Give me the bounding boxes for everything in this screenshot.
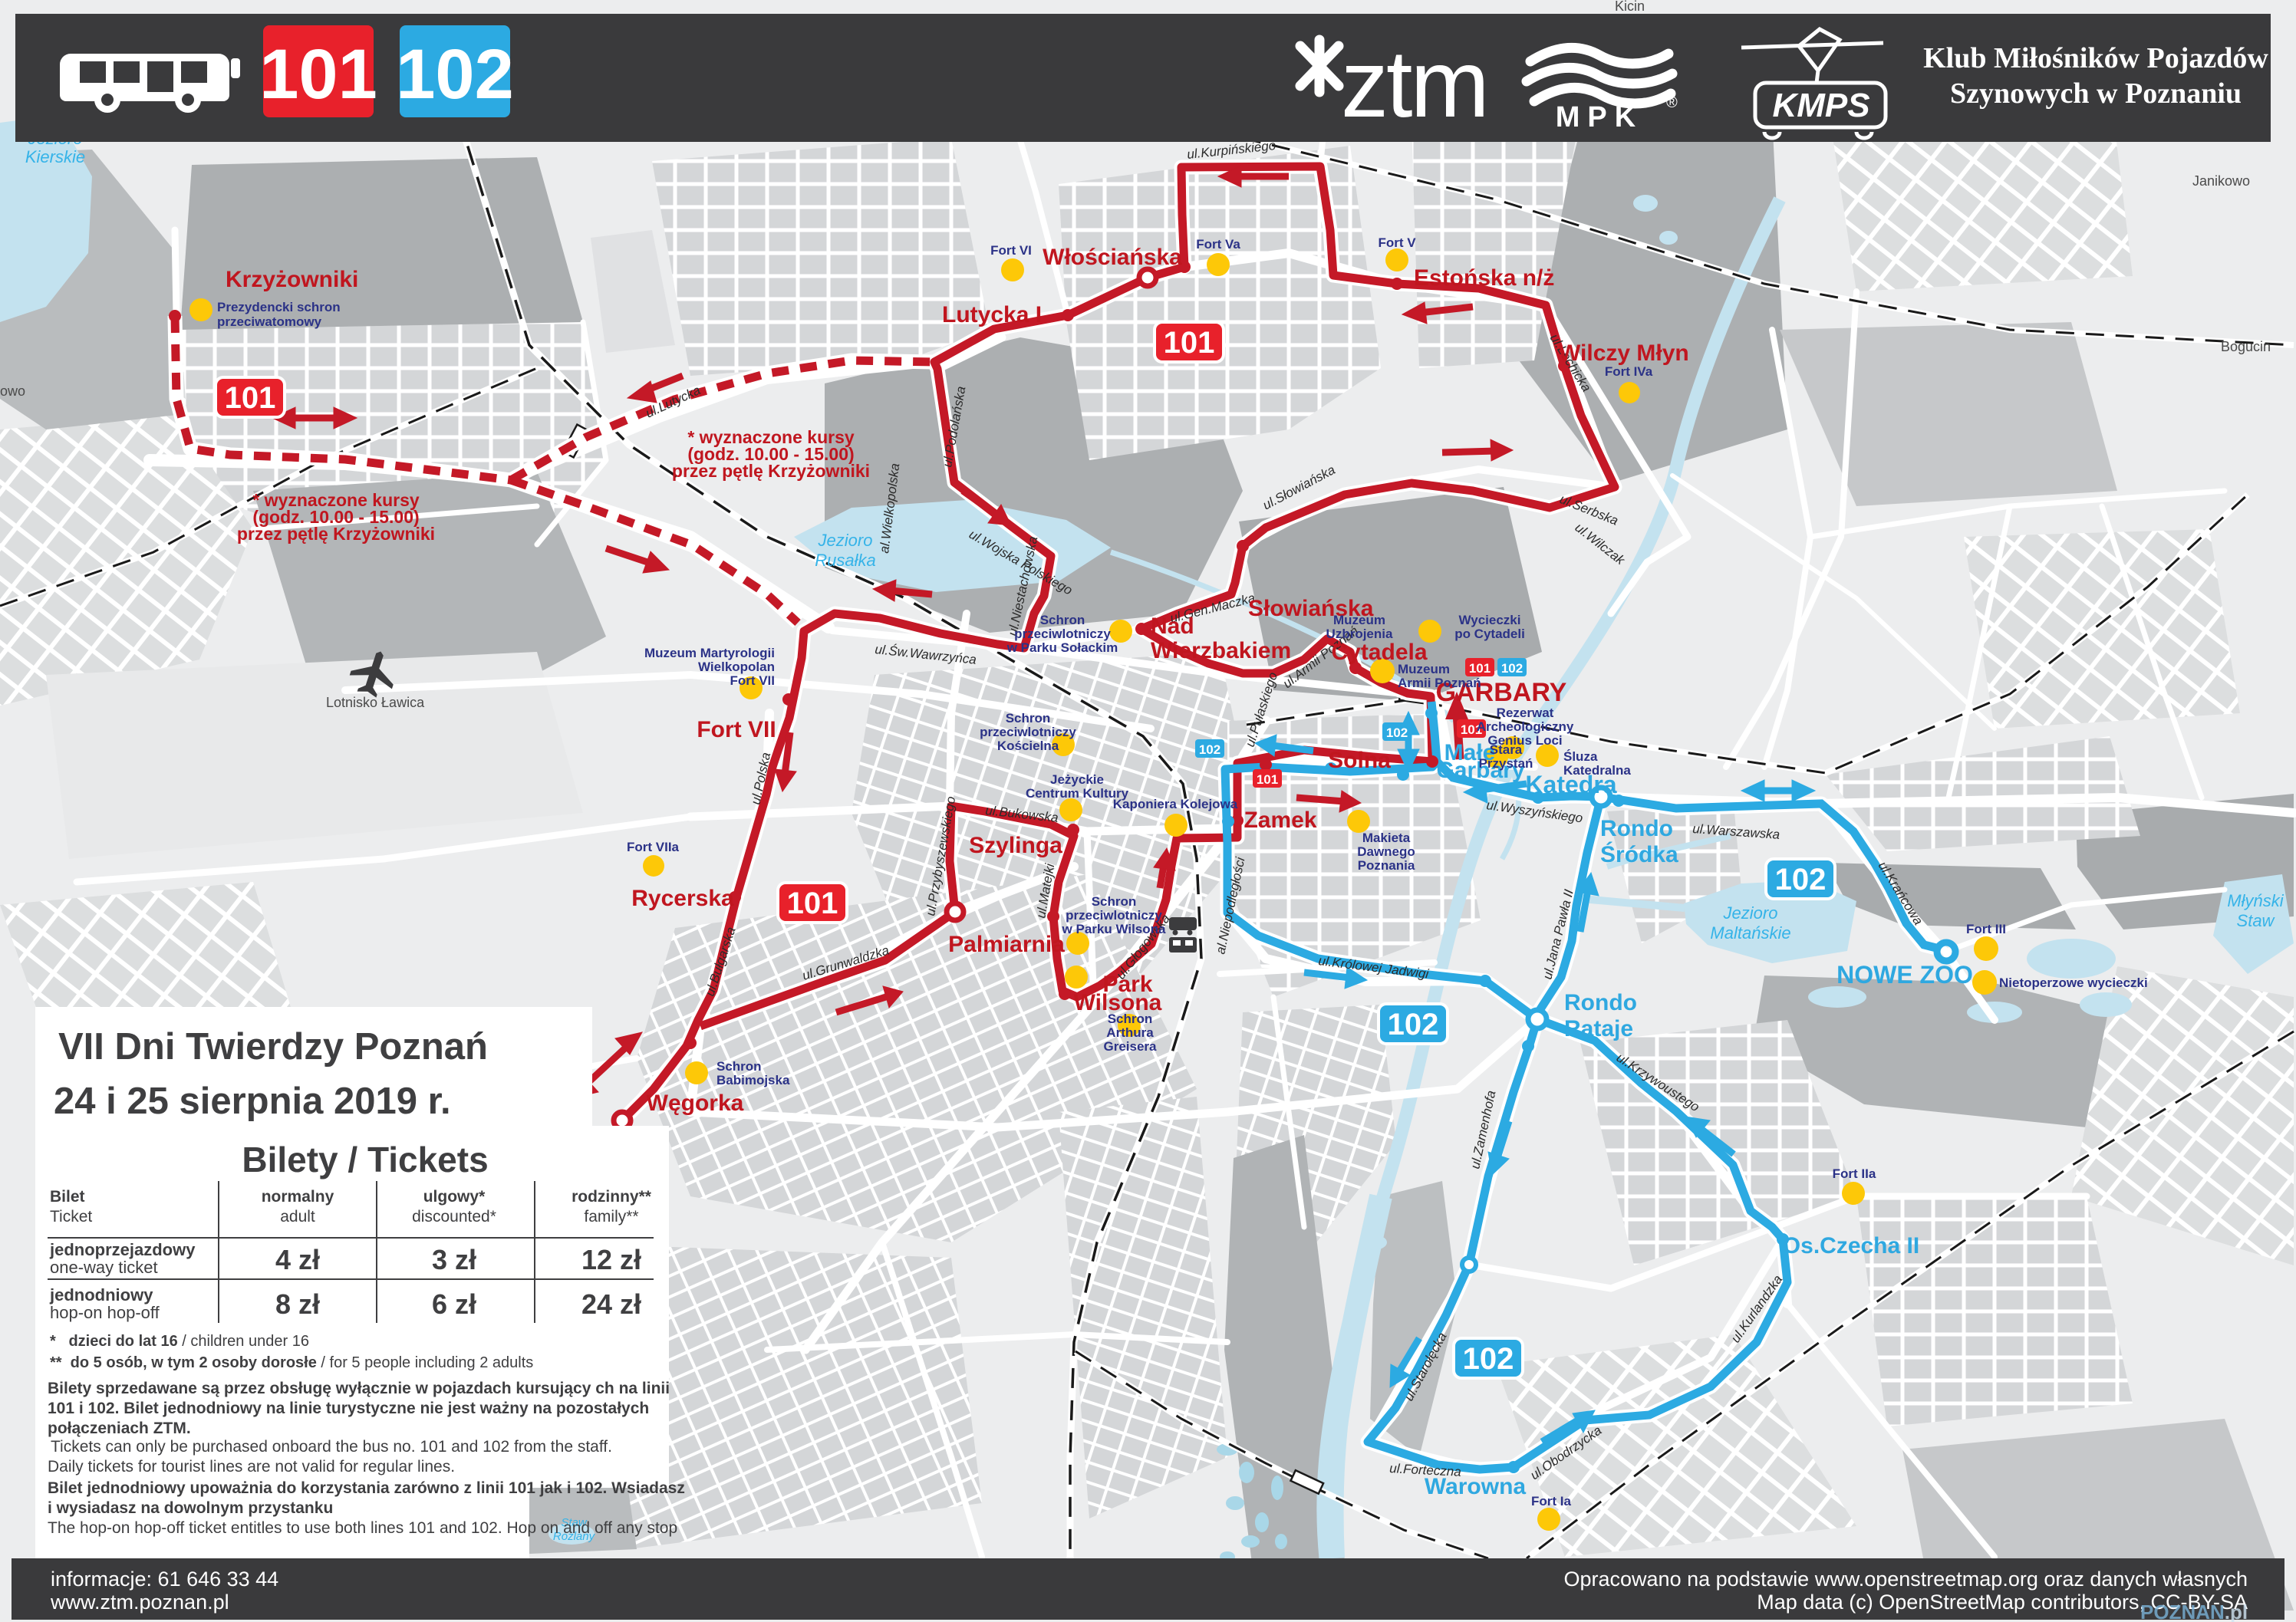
svg-text:Muzeum Martyrologii: Muzeum Martyrologii bbox=[644, 646, 775, 660]
svg-text:Fort V: Fort V bbox=[1378, 235, 1416, 250]
svg-text:MPK: MPK bbox=[1556, 101, 1643, 133]
svg-text:6 zł: 6 zł bbox=[432, 1288, 476, 1320]
svg-text:Staw: Staw bbox=[2237, 911, 2276, 930]
svg-text:Śródka: Śródka bbox=[1600, 841, 1678, 867]
svg-text:Lutycka I: Lutycka I bbox=[942, 302, 1042, 327]
svg-text:Przystań: Przystań bbox=[1479, 756, 1533, 771]
svg-text:101: 101 bbox=[259, 35, 377, 114]
svg-text:normalny: normalny bbox=[262, 1188, 334, 1206]
svg-text:NOWE ZOO: NOWE ZOO bbox=[1836, 961, 1973, 989]
svg-text:Fort Ia: Fort Ia bbox=[1531, 1494, 1571, 1508]
svg-text:informacje: 61 646 33 44: informacje: 61 646 33 44 bbox=[51, 1568, 278, 1591]
svg-text:Kościelna: Kościelna bbox=[997, 739, 1059, 753]
svg-text:101: 101 bbox=[1469, 661, 1491, 676]
svg-text:Estońska n/ż: Estońska n/ż bbox=[1414, 265, 1554, 291]
svg-text:Bilet jednodniowy upoważnia do: Bilet jednodniowy upoważnia do korzystan… bbox=[48, 1479, 685, 1497]
svg-text:Rycerska: Rycerska bbox=[631, 886, 734, 911]
svg-text:i wysiadasz na dowolnym przyst: i wysiadasz na dowolnym przystanku bbox=[48, 1499, 333, 1517]
svg-text:Jeżyckie: Jeżyckie bbox=[1050, 772, 1104, 787]
svg-text:one-way ticket: one-way ticket bbox=[50, 1258, 158, 1277]
svg-text:Opracowano na podstawie www.op: Opracowano na podstawie www.openstreetma… bbox=[1564, 1568, 2248, 1591]
svg-text:Daily tickets for tourist line: Daily tickets for tourist lines are not … bbox=[48, 1458, 455, 1476]
svg-text:102: 102 bbox=[1388, 1008, 1439, 1041]
svg-text:Fort VII: Fort VII bbox=[697, 717, 776, 742]
svg-text:24 zł: 24 zł bbox=[581, 1288, 641, 1320]
svg-text:jednoprzejazdowy: jednoprzejazdowy bbox=[49, 1240, 196, 1259]
svg-text:102: 102 bbox=[1775, 863, 1827, 897]
svg-text:102: 102 bbox=[1463, 1342, 1514, 1376]
svg-text:12 zł: 12 zł bbox=[581, 1244, 641, 1275]
svg-text:®: ® bbox=[1666, 94, 1678, 111]
svg-text:Rataje: Rataje bbox=[1564, 1016, 1633, 1041]
svg-text:101: 101 bbox=[225, 381, 276, 415]
svg-text:Poznania: Poznania bbox=[1358, 858, 1415, 873]
svg-text:Schron: Schron bbox=[1006, 711, 1051, 725]
svg-text:Armii Poznań: Armii Poznań bbox=[1398, 676, 1481, 690]
svg-text:Rezerwat: Rezerwat bbox=[1497, 706, 1554, 720]
svg-text:ztm: ztm bbox=[1341, 31, 1487, 137]
svg-text:Wycieczki: Wycieczki bbox=[1459, 613, 1521, 627]
svg-text:Rusałka: Rusałka bbox=[815, 551, 875, 570]
svg-text:Fort IVa: Fort IVa bbox=[1605, 364, 1653, 379]
svg-text:Stara: Stara bbox=[1490, 742, 1523, 757]
svg-text:Makieta: Makieta bbox=[1362, 831, 1411, 845]
svg-text:Śluza: Śluza bbox=[1563, 749, 1598, 764]
svg-text:101: 101 bbox=[1257, 772, 1278, 787]
svg-text:Kierskie: Kierskie bbox=[25, 147, 85, 166]
svg-text:Nietoperzowe wycieczki: Nietoperzowe wycieczki bbox=[1999, 976, 2148, 990]
svg-text:Młyński: Młyński bbox=[2227, 891, 2284, 910]
svg-text:ulgowy*: ulgowy* bbox=[423, 1188, 486, 1206]
svg-text:Jezioro: Jezioro bbox=[818, 531, 873, 550]
svg-text:Katedralna: Katedralna bbox=[1563, 763, 1631, 778]
svg-text:family**: family** bbox=[584, 1208, 638, 1226]
svg-text:Muzeum: Muzeum bbox=[1333, 613, 1385, 627]
svg-text:Węgorka: Węgorka bbox=[647, 1091, 744, 1116]
svg-text:102: 102 bbox=[1199, 742, 1220, 757]
svg-text:4 zł: 4 zł bbox=[275, 1244, 320, 1275]
svg-text:102: 102 bbox=[1386, 725, 1408, 740]
svg-text:Janikowo: Janikowo bbox=[2192, 173, 2250, 189]
svg-text:Schron: Schron bbox=[1108, 1012, 1153, 1026]
svg-text:połączeniach ZTM.: połączeniach ZTM. bbox=[48, 1420, 191, 1437]
svg-text:jednodniowy: jednodniowy bbox=[49, 1285, 153, 1305]
svg-text:Os.Czecha II: Os.Czecha II bbox=[1783, 1233, 1919, 1258]
svg-text:Nad: Nad bbox=[1151, 614, 1194, 639]
svg-text:Lotnisko Ławica: Lotnisko Ławica bbox=[326, 695, 425, 710]
svg-text:102: 102 bbox=[1501, 661, 1523, 676]
svg-text:102: 102 bbox=[396, 35, 514, 114]
svg-text:Palmiarnia: Palmiarnia bbox=[948, 932, 1065, 957]
svg-text:w Parku Wilsona: w Parku Wilsona bbox=[1062, 922, 1166, 936]
svg-text:Włościańska: Włościańska bbox=[1043, 245, 1182, 270]
svg-text:Ticket: Ticket bbox=[50, 1208, 92, 1226]
svg-text:przeciwlotniczy: przeciwlotniczy bbox=[980, 725, 1076, 739]
svg-text:hop-on hop-off: hop-on hop-off bbox=[50, 1303, 160, 1322]
svg-text:w Parku Sołackim: w Parku Sołackim bbox=[1006, 640, 1118, 655]
svg-text:Greisera: Greisera bbox=[1104, 1039, 1158, 1054]
svg-text:Babimojska: Babimojska bbox=[716, 1073, 790, 1087]
svg-text:Bilety / Tickets: Bilety / Tickets bbox=[242, 1140, 488, 1179]
svg-text:Fort III: Fort III bbox=[1966, 922, 2006, 936]
svg-text:przeciwlotniczy: przeciwlotniczy bbox=[1066, 908, 1162, 923]
svg-text:Archeologiczny: Archeologiczny bbox=[1477, 719, 1574, 734]
svg-text:101: 101 bbox=[1164, 326, 1215, 360]
svg-text:Rondo: Rondo bbox=[1564, 990, 1637, 1015]
svg-text:Szynowych w Poznaniu: Szynowych w Poznaniu bbox=[1950, 77, 2242, 110]
svg-text:Schron: Schron bbox=[716, 1059, 762, 1074]
svg-text:Wielkopolan: Wielkopolan bbox=[698, 660, 775, 674]
svg-text:Uzbrojenia: Uzbrojenia bbox=[1326, 627, 1393, 641]
svg-text:po Cytadeli: po Cytadeli bbox=[1454, 627, 1525, 641]
svg-text:Klub Miłośników Pojazdów: Klub Miłośników Pojazdów bbox=[1923, 42, 2268, 74]
svg-text:** do 5 osób, w tym 2 osoby d: ** do 5 osób, w tym 2 osoby dorosłe / fo… bbox=[50, 1354, 533, 1371]
svg-text:przeciwlotniczy: przeciwlotniczy bbox=[1014, 627, 1111, 641]
svg-text:owo: owo bbox=[0, 383, 25, 399]
svg-text:Fort VI: Fort VI bbox=[990, 243, 1032, 258]
svg-text:Jezioro: Jezioro bbox=[1723, 903, 1778, 923]
svg-text:Bogucin: Bogucin bbox=[2221, 339, 2271, 354]
svg-text:POZNAN.pl: POZNAN.pl bbox=[2140, 1601, 2248, 1622]
svg-text:Warowna: Warowna bbox=[1425, 1474, 1527, 1499]
svg-text:Solna: Solna bbox=[1328, 748, 1391, 773]
svg-text:Bilet: Bilet bbox=[50, 1188, 85, 1206]
svg-text:Muzeum: Muzeum bbox=[1398, 662, 1450, 676]
svg-text:rodzinny**: rodzinny** bbox=[572, 1188, 652, 1206]
svg-text:Tickets can only be purchased: Tickets can only be purchased onboard th… bbox=[51, 1438, 612, 1456]
svg-text:przeciwatomowy: przeciwatomowy bbox=[217, 314, 322, 329]
svg-text:discounted*: discounted* bbox=[412, 1208, 496, 1226]
svg-text:Zamek: Zamek bbox=[1244, 808, 1316, 833]
svg-text:Dawnego: Dawnego bbox=[1357, 844, 1415, 859]
svg-text:24 i 25 sierpnia 2019 r.: 24 i 25 sierpnia 2019 r. bbox=[54, 1081, 451, 1122]
svg-text:Fort VII: Fort VII bbox=[730, 673, 775, 688]
svg-text:Szylinga: Szylinga bbox=[969, 833, 1062, 858]
svg-text:Fort VIIa: Fort VIIa bbox=[627, 840, 680, 854]
svg-text:Wilczy Młyn: Wilczy Młyn bbox=[1559, 341, 1689, 366]
svg-text:Kaponiera Kolejowa: Kaponiera Kolejowa bbox=[1113, 797, 1238, 811]
svg-text:8 zł: 8 zł bbox=[275, 1288, 320, 1320]
svg-text:przez pętlę Krzyżowniki: przez pętlę Krzyżowniki bbox=[237, 524, 435, 544]
svg-text:adult: adult bbox=[280, 1208, 315, 1226]
svg-text:101: 101 bbox=[787, 887, 838, 920]
svg-text:Kicin: Kicin bbox=[1615, 0, 1645, 14]
svg-text:KMPS: KMPS bbox=[1772, 87, 1869, 124]
svg-text:Fort IIa: Fort IIa bbox=[1833, 1166, 1876, 1181]
svg-text:101 i 102. Bilet jednodniowy n: 101 i 102. Bilet jednodniowy na linie tu… bbox=[48, 1400, 649, 1417]
svg-text:Schron: Schron bbox=[1040, 613, 1085, 627]
svg-text:VII Dni Twierdzy Poznań: VII Dni Twierdzy Poznań bbox=[58, 1026, 488, 1068]
svg-text:Fort Va: Fort Va bbox=[1196, 237, 1240, 252]
svg-text:3 zł: 3 zł bbox=[432, 1244, 476, 1275]
svg-text:The hop-on hop-off ticket enti: The hop-on hop-off ticket entitles to us… bbox=[48, 1519, 677, 1537]
svg-text:Bilety sprzedawane są przez ob: Bilety sprzedawane są przez obsługę wyłą… bbox=[48, 1380, 670, 1397]
svg-text:Krzyżowniki: Krzyżowniki bbox=[226, 267, 358, 292]
svg-text:Rondo: Rondo bbox=[1600, 816, 1673, 841]
svg-text:www.ztm.poznan.pl: www.ztm.poznan.pl bbox=[50, 1591, 229, 1614]
svg-text:* dzieci do lat 16 / childre: * dzieci do lat 16 / children under 16 bbox=[50, 1333, 309, 1350]
svg-text:Wierzbakiem: Wierzbakiem bbox=[1151, 638, 1291, 663]
svg-text:Prezydencki schron: Prezydencki schron bbox=[217, 300, 341, 314]
svg-text:przez pętlę Krzyżowniki: przez pętlę Krzyżowniki bbox=[672, 461, 870, 481]
svg-text:Arthura: Arthura bbox=[1106, 1025, 1154, 1040]
svg-text:Schron: Schron bbox=[1092, 894, 1137, 909]
svg-text:Maltańskie: Maltańskie bbox=[1710, 923, 1790, 943]
